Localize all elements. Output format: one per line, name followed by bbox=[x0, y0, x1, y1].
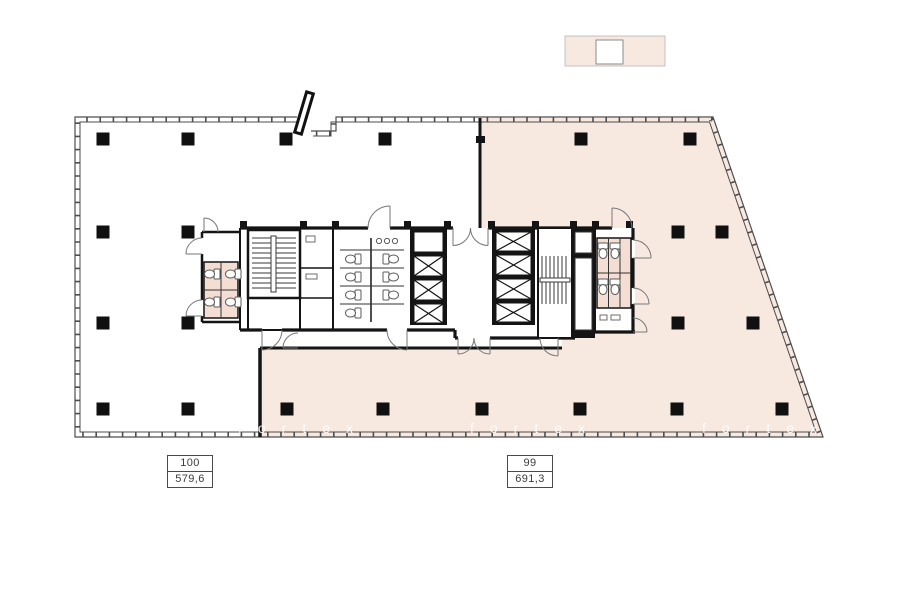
watermark: fortex fortex fortex bbox=[238, 420, 833, 436]
svg-text:fortex: fortex bbox=[470, 420, 601, 436]
sink-icon bbox=[376, 238, 397, 243]
unit-99-area: 691,3 bbox=[508, 472, 552, 487]
floor-plan-page: fortex fortex fortex 100 579,6 99 691,3 bbox=[0, 0, 900, 604]
shaft-block bbox=[572, 228, 595, 338]
svg-text:fortex: fortex bbox=[238, 420, 369, 436]
floor-plan-svg: fortex fortex fortex bbox=[0, 0, 900, 604]
sink-icon bbox=[600, 315, 620, 320]
stair-right bbox=[538, 228, 572, 338]
unit-99-number: 99 bbox=[508, 456, 552, 472]
unit-100-label[interactable]: 100 579,6 bbox=[167, 455, 213, 488]
svg-text:fortex: fortex bbox=[702, 420, 833, 436]
right-restroom bbox=[597, 238, 631, 320]
unit-99-label[interactable]: 99 691,3 bbox=[507, 455, 553, 488]
unit-100-area: 579,6 bbox=[168, 472, 212, 487]
roof-terrace bbox=[565, 36, 665, 66]
elevator-bank-1 bbox=[410, 228, 447, 325]
service-rooms bbox=[306, 236, 317, 279]
stair-left bbox=[248, 230, 300, 330]
unit-100-number: 100 bbox=[168, 456, 212, 472]
elevator-bank-2 bbox=[492, 228, 535, 325]
core bbox=[186, 206, 651, 356]
